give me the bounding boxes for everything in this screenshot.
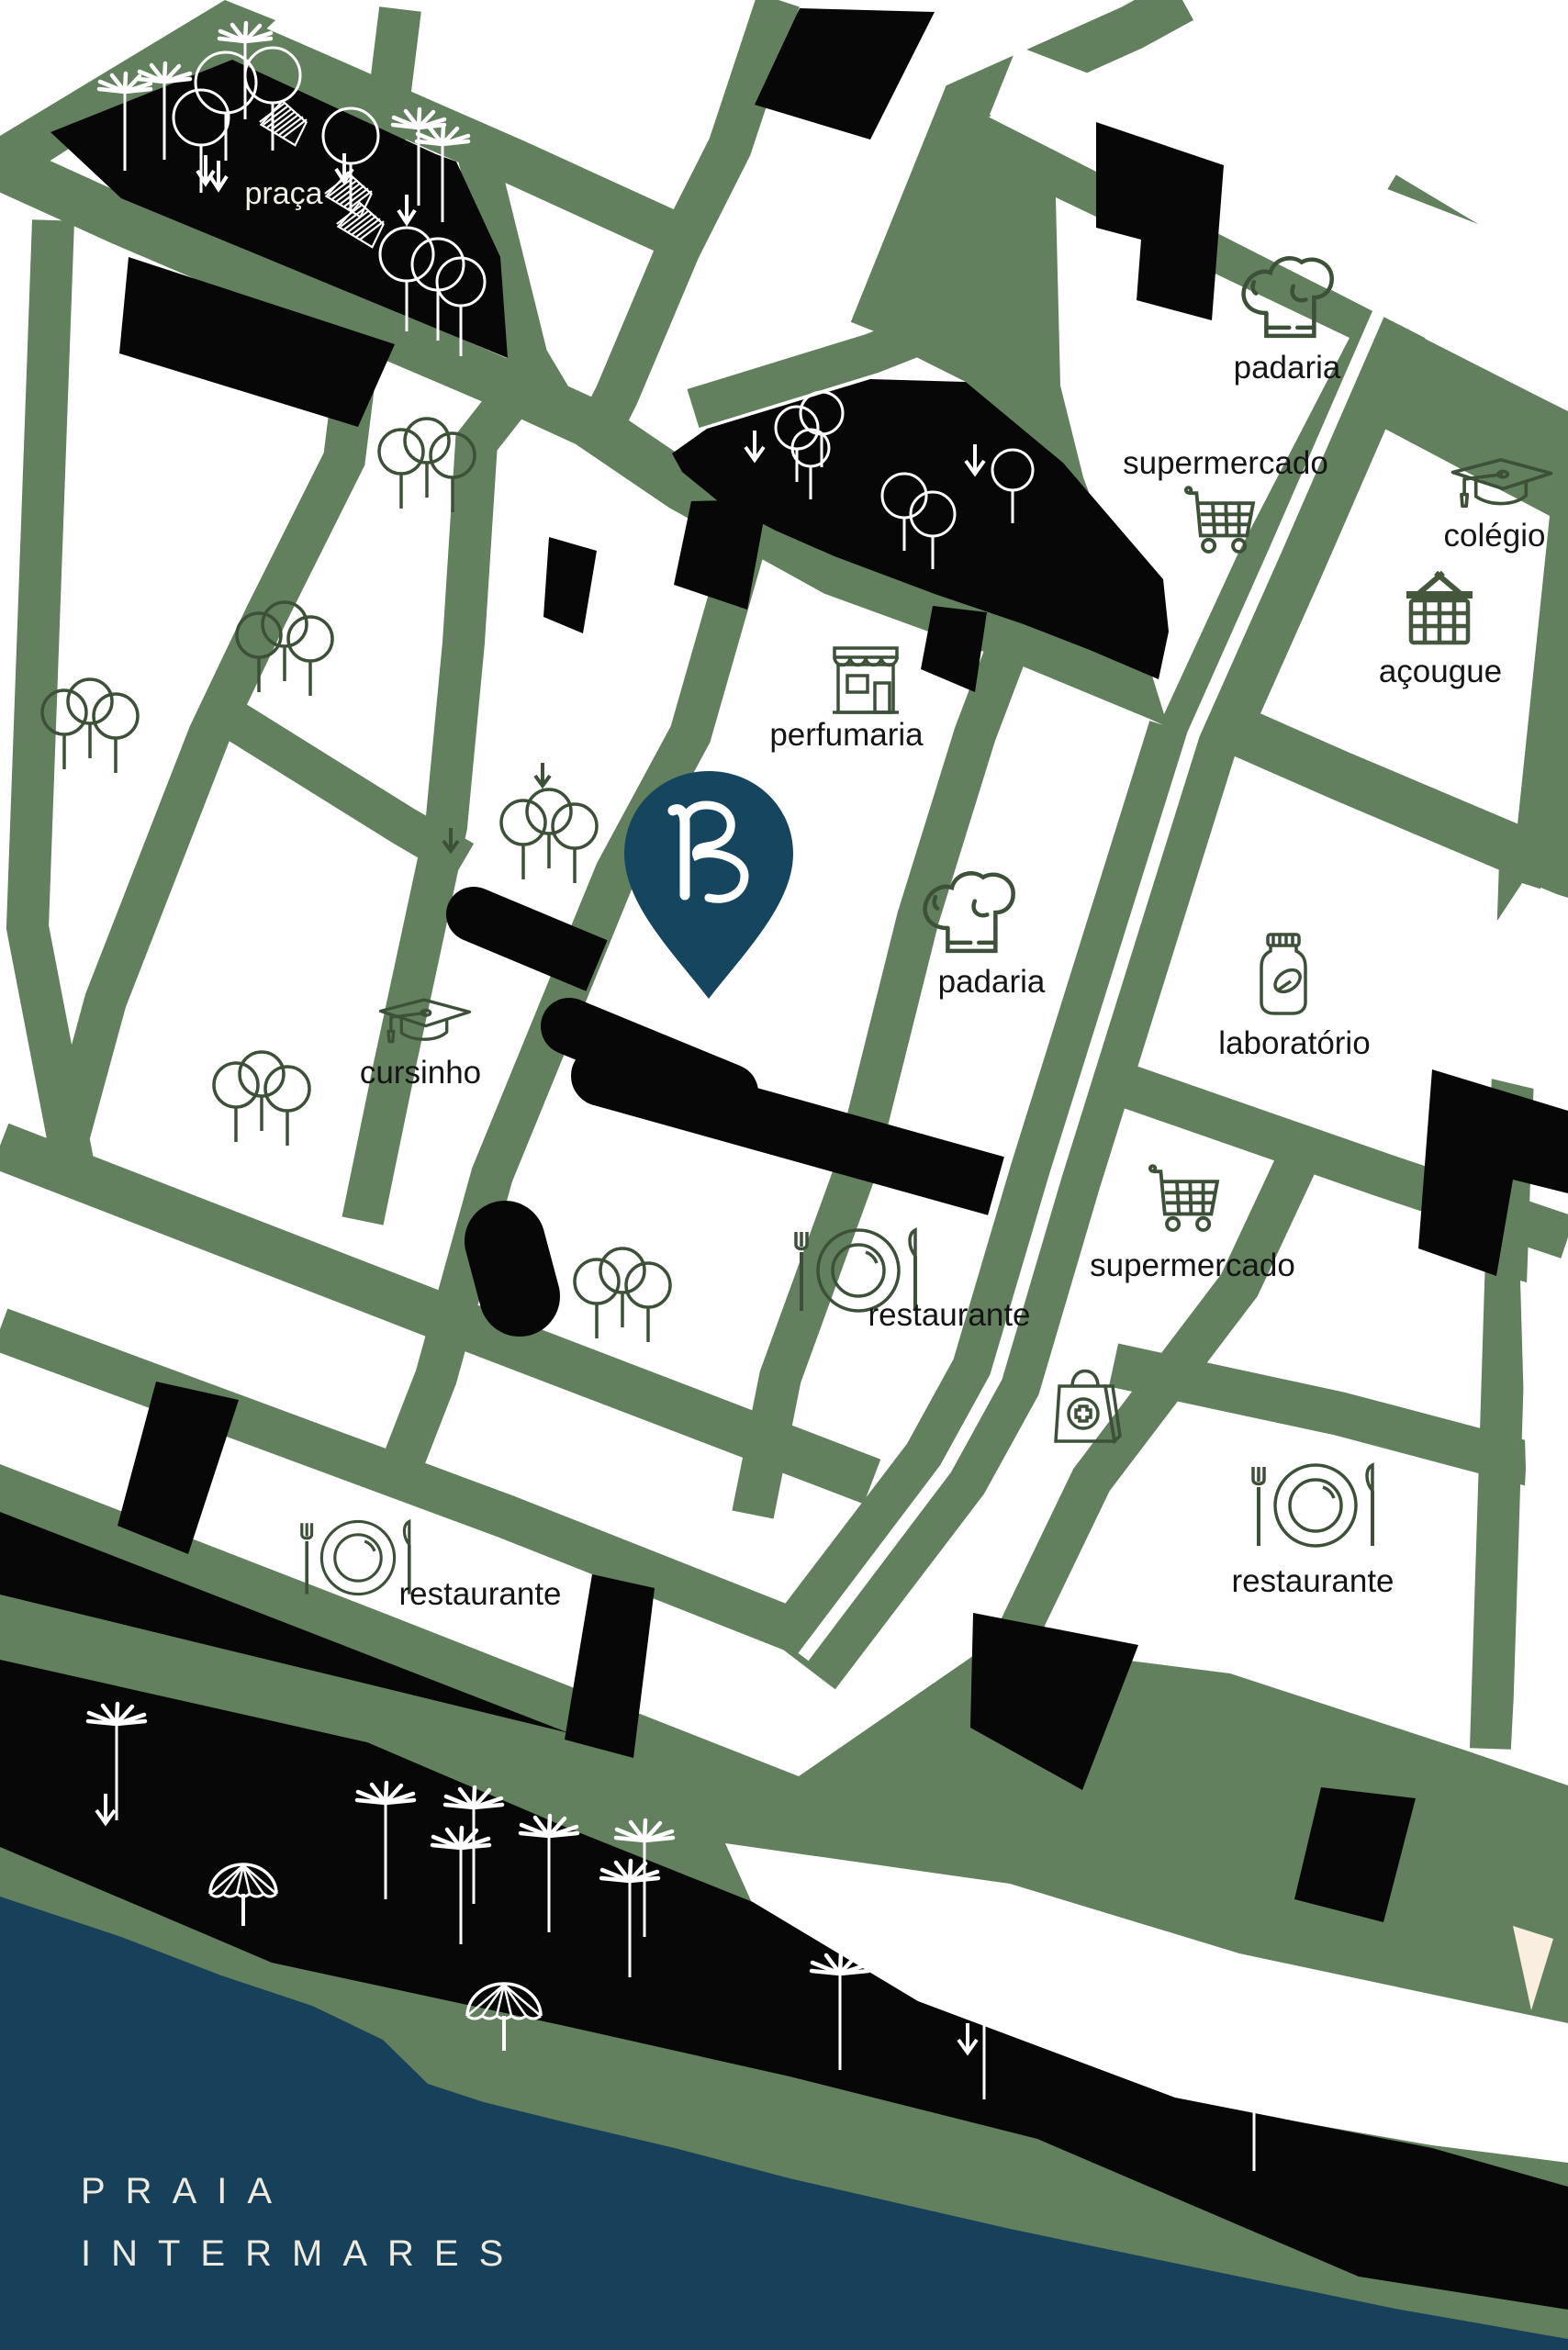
svg-text:colégio: colégio [1444,518,1546,554]
svg-text:supermercado: supermercado [1090,1248,1295,1283]
svg-text:restaurante: restaurante [1231,1563,1394,1599]
svg-text:supermercado: supermercado [1123,445,1328,481]
svg-text:INTERMARES: INTERMARES [81,2233,523,2274]
svg-text:açougue: açougue [1379,654,1502,689]
svg-text:restaurante: restaurante [398,1576,561,1612]
svg-text:cursinho: cursinho [360,1055,481,1091]
svg-text:PRAIA: PRAIA [81,2171,292,2211]
svg-text:praça: praça [244,176,322,211]
svg-text:perfumaria: perfumaria [769,717,924,753]
svg-text:laboratório: laboratório [1218,1025,1370,1061]
svg-text:padaria: padaria [938,964,1046,1000]
svg-text:padaria: padaria [1234,350,1341,386]
svg-text:restaurante: restaurante [868,1297,1030,1333]
